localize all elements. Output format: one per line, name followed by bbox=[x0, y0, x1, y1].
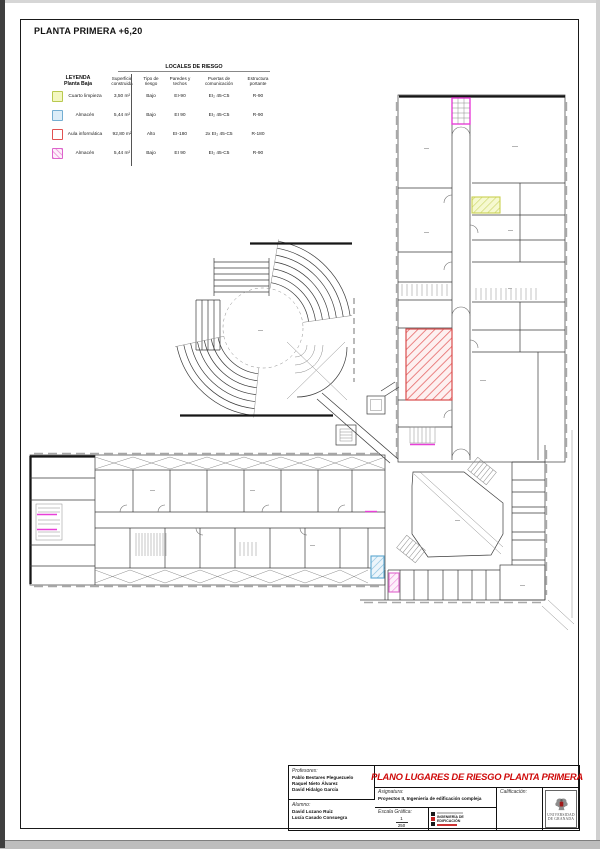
scale-box: Escala Gráfica: 1 250 bbox=[375, 808, 429, 830]
room-almacen-magenta-stair bbox=[452, 98, 470, 124]
school-logo-box: INGENIERÍA DE EDIFICACIÓN bbox=[429, 808, 497, 830]
students-box: Alumno: David Lozano Ruiz Lucía Casado C… bbox=[289, 800, 375, 830]
auditorium bbox=[175, 239, 354, 417]
professors-box: Profesores: Pablo Bestares Pleguezuelo R… bbox=[289, 766, 375, 800]
university-logo-box: UNIVERSIDAD DE GRANADA bbox=[543, 788, 579, 830]
school-logo-topline bbox=[437, 812, 463, 814]
room-almacen-blue-highlight bbox=[371, 556, 384, 578]
students-label: Alumno: bbox=[292, 802, 372, 808]
room-aula-informatica-highlight bbox=[406, 329, 452, 400]
diagonal-corridor bbox=[317, 382, 399, 463]
subject-value: Proyectos II, Ingeniería de edificación … bbox=[378, 796, 493, 802]
title-block: Profesores: Pablo Bestares Pleguezuelo R… bbox=[288, 765, 580, 831]
university-name-line1: UNIVERSIDAD bbox=[547, 813, 574, 817]
subject-label: Asignatura: bbox=[378, 789, 493, 795]
floor-plan-drawing bbox=[0, 0, 600, 848]
university-name-line2: DE GRANADA bbox=[548, 817, 574, 821]
school-logo-text: INGENIERÍA DE EDIFICACIÓN bbox=[437, 815, 483, 823]
student-name: Lucía Casado Consuegra bbox=[292, 815, 372, 821]
grade-label: Calificación: bbox=[500, 789, 539, 795]
school-logo-icon bbox=[431, 812, 435, 826]
right-wing bbox=[397, 95, 567, 462]
professor-name: David Hidalgo García bbox=[292, 787, 371, 793]
room-label-marks bbox=[150, 146, 525, 586]
school-logo-redline bbox=[437, 824, 457, 826]
sheet-title: PLANO LUGARES DE RIESGO PLANTA PRIMERA bbox=[371, 771, 583, 782]
scale-fraction: 1 250 bbox=[396, 816, 408, 828]
university-crest-icon bbox=[554, 797, 569, 812]
sheet-title-box: PLANO LUGARES DE RIESGO PLANTA PRIMERA bbox=[375, 766, 579, 788]
octagon-block bbox=[360, 430, 574, 630]
room-almacen-pink-highlight bbox=[389, 573, 399, 592]
room-cuarto-limpieza-highlight bbox=[472, 197, 500, 213]
bottom-wing bbox=[30, 454, 385, 587]
drawing-sheet: PLANTA PRIMERA +6,20 LOCALES DE RIESGO L… bbox=[0, 0, 600, 848]
scale-label: Escala Gráfica: bbox=[378, 809, 425, 815]
subject-box: Asignatura: Proyectos II, Ingeniería de … bbox=[375, 788, 497, 808]
professors-label: Profesores: bbox=[292, 768, 371, 774]
grade-box: Calificación: bbox=[497, 788, 543, 830]
